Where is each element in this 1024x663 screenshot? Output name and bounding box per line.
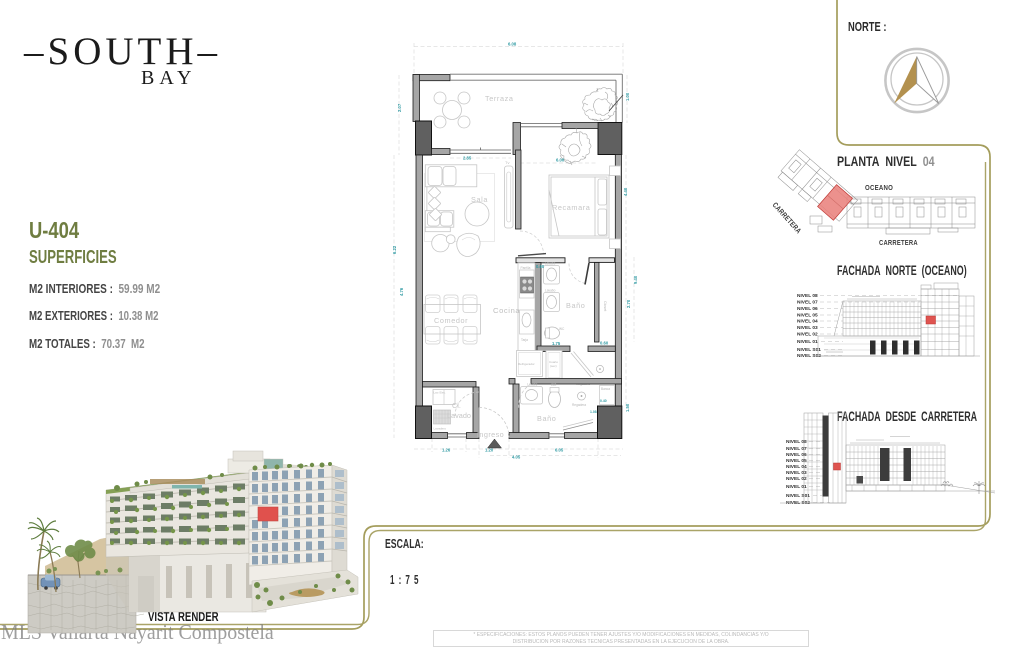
svg-text:Comedor: Comedor xyxy=(434,316,468,325)
svg-text:Lavabo: Lavabo xyxy=(527,383,538,387)
svg-text:2.07: 2.07 xyxy=(397,103,402,112)
svg-text:Sala: Sala xyxy=(471,195,488,204)
svg-text:Lav./Sec.: Lav./Sec. xyxy=(434,391,446,395)
svg-text:0.60: 0.60 xyxy=(600,341,609,346)
svg-text:Tv: Tv xyxy=(505,160,509,165)
svg-text:NIVEL 05: NIVEL 05 xyxy=(797,313,818,319)
svg-text:1.20: 1.20 xyxy=(485,448,494,453)
svg-text:Lavadero: Lavadero xyxy=(434,427,447,431)
svg-text:1.26: 1.26 xyxy=(442,448,451,453)
svg-text:Lavabo: Lavabo xyxy=(545,262,556,266)
svg-text:4.76: 4.76 xyxy=(399,287,404,296)
svg-text:6.00: 6.00 xyxy=(556,158,565,163)
svg-text:Lavabo: Lavabo xyxy=(545,289,556,293)
svg-text:Parrilla: Parrilla xyxy=(521,266,531,270)
svg-text:WC: WC xyxy=(551,383,557,387)
svg-text:4.05: 4.05 xyxy=(512,455,521,460)
svg-text:Tarja: Tarja xyxy=(521,338,528,342)
svg-text:NIVEL S01: NIVEL S01 xyxy=(786,493,810,499)
svg-text:Baño: Baño xyxy=(566,301,585,310)
svg-text:0.60: 0.60 xyxy=(536,264,545,269)
svg-text:0.40: 0.40 xyxy=(600,399,607,403)
svg-text:WC: WC xyxy=(559,327,565,331)
svg-text:NIVEL 07: NIVEL 07 xyxy=(797,300,818,306)
svg-text:6.08: 6.08 xyxy=(508,42,517,47)
svg-text:1.75: 1.75 xyxy=(552,341,561,346)
svg-text:NIVEL 08: NIVEL 08 xyxy=(797,293,818,299)
svg-text:Lavado: Lavado xyxy=(447,411,471,420)
svg-text:Regadera: Regadera xyxy=(572,403,586,407)
svg-text:9.40: 9.40 xyxy=(633,275,638,284)
svg-text:Terraza: Terraza xyxy=(485,94,514,103)
svg-text:6.22: 6.22 xyxy=(392,245,397,254)
svg-text:NIVEL S02: NIVEL S02 xyxy=(797,353,821,359)
svg-text:NIVEL 03: NIVEL 03 xyxy=(797,325,818,331)
svg-text:2.70: 2.70 xyxy=(626,299,631,308)
svg-text:1.08: 1.08 xyxy=(590,410,597,414)
svg-text:4.40: 4.40 xyxy=(623,187,628,196)
svg-text:Closet: Closet xyxy=(603,301,607,311)
svg-text:NIVEL 01: NIVEL 01 xyxy=(797,339,818,345)
svg-text:Recamara: Recamara xyxy=(552,203,591,212)
svg-text:NIVEL 02: NIVEL 02 xyxy=(797,332,818,338)
svg-text:Ingreso: Ingreso xyxy=(477,430,504,439)
svg-text:NIVEL 06: NIVEL 06 xyxy=(797,306,818,312)
svg-text:2.85: 2.85 xyxy=(463,156,472,161)
svg-text:NIVEL S01: NIVEL S01 xyxy=(797,347,821,353)
svg-text:1.50: 1.50 xyxy=(625,403,630,412)
svg-text:Cocina: Cocina xyxy=(493,306,520,315)
svg-text:6.05: 6.05 xyxy=(555,448,564,453)
svg-text:Baño: Baño xyxy=(537,414,556,423)
svg-text:Refrigerador: Refrigerador xyxy=(518,362,535,366)
svg-text:1.00: 1.00 xyxy=(625,92,630,101)
svg-text:(sec): (sec) xyxy=(550,364,557,368)
svg-text:Banca: Banca xyxy=(601,387,610,391)
svg-text:NIVEL 04: NIVEL 04 xyxy=(797,319,818,325)
